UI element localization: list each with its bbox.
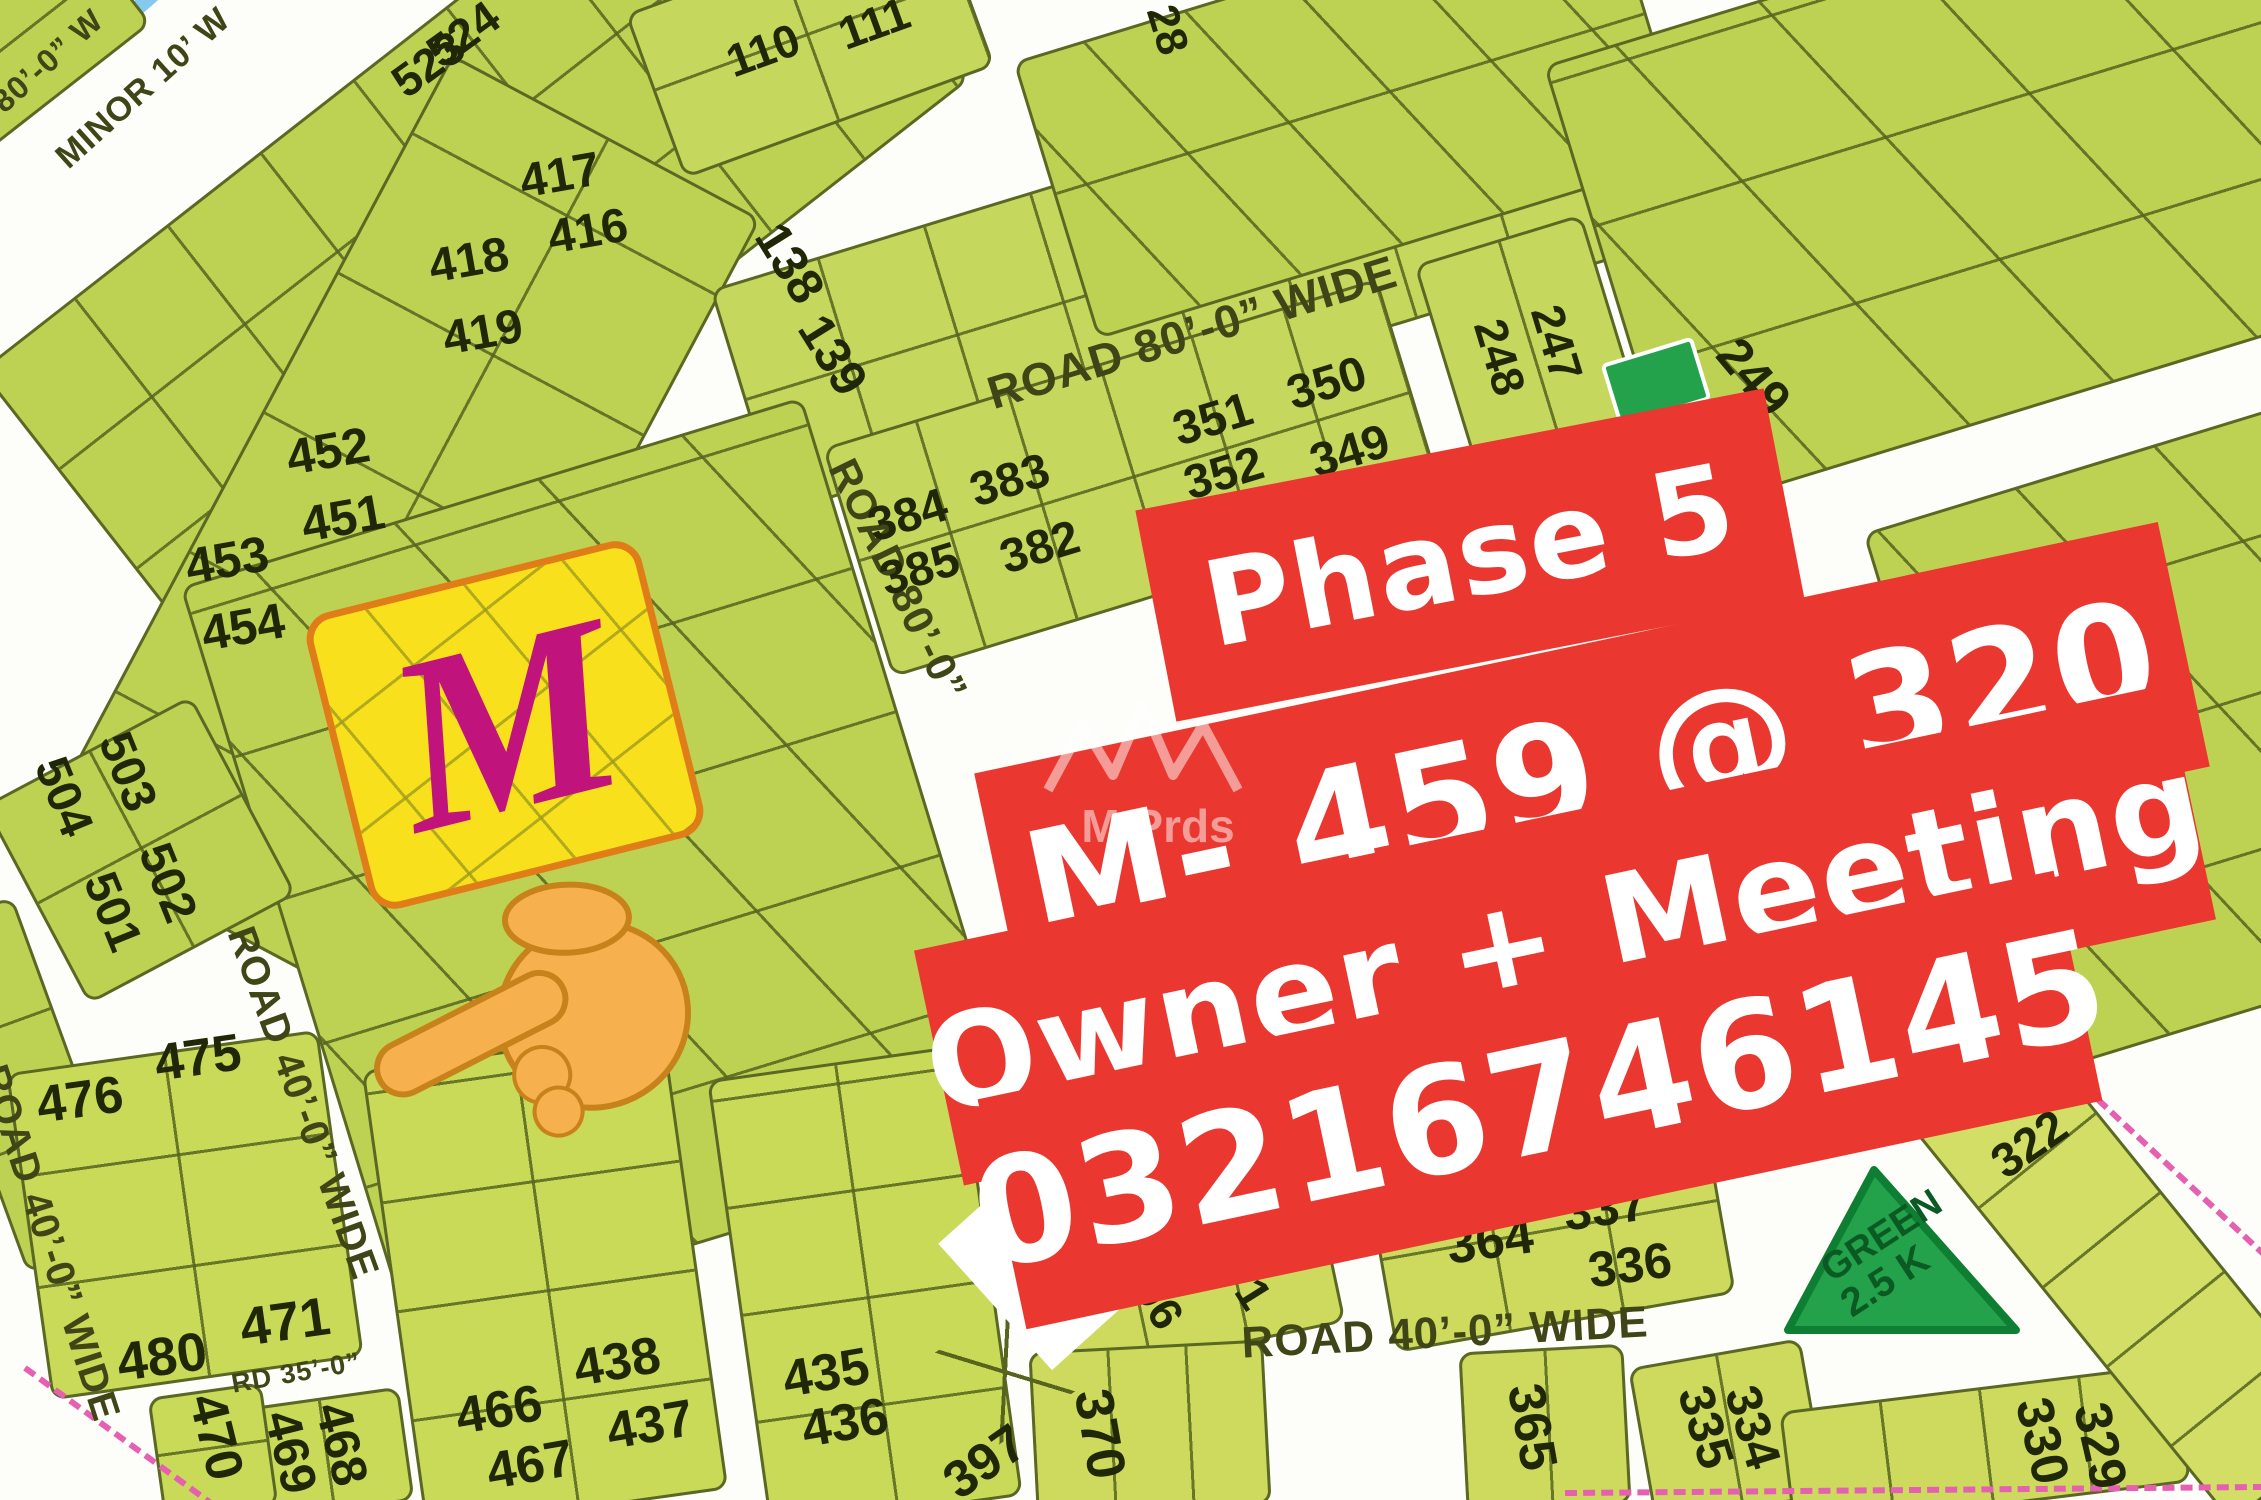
plot-number-label: 438	[570, 1329, 664, 1395]
plot-number-label: 454	[198, 595, 289, 659]
plot-number-label: 471	[237, 1289, 334, 1355]
plot-number-label: 436	[798, 1390, 892, 1456]
plot-number-label: 475	[151, 1026, 244, 1090]
plot-number-label: 466	[452, 1377, 546, 1443]
plot-number-label: 451	[298, 486, 389, 550]
plot-number-label: 476	[33, 1068, 126, 1132]
plot-number-label: 437	[603, 1392, 697, 1458]
svg-text:M Prds: M Prds	[1081, 800, 1234, 852]
plot-number-label: 467	[483, 1432, 577, 1498]
plot-number-label: 452	[283, 419, 374, 483]
plot-number-label: 453	[182, 528, 273, 592]
plot-number-label: 365	[1499, 1380, 1565, 1474]
plot-number-label: 336	[1585, 1234, 1675, 1295]
green-area-triangle: GREEN 2.5 K	[1770, 1150, 2030, 1340]
plot-number-label: 370	[1066, 1385, 1135, 1483]
plot-number-label: 480	[114, 1324, 211, 1390]
plot-map-canvas: GREEN 2.5 KMINOR 10’ WAD 80’-0” WROAD 80…	[0, 0, 2261, 1500]
photo-watermark: M Prds	[1028, 670, 1288, 880]
